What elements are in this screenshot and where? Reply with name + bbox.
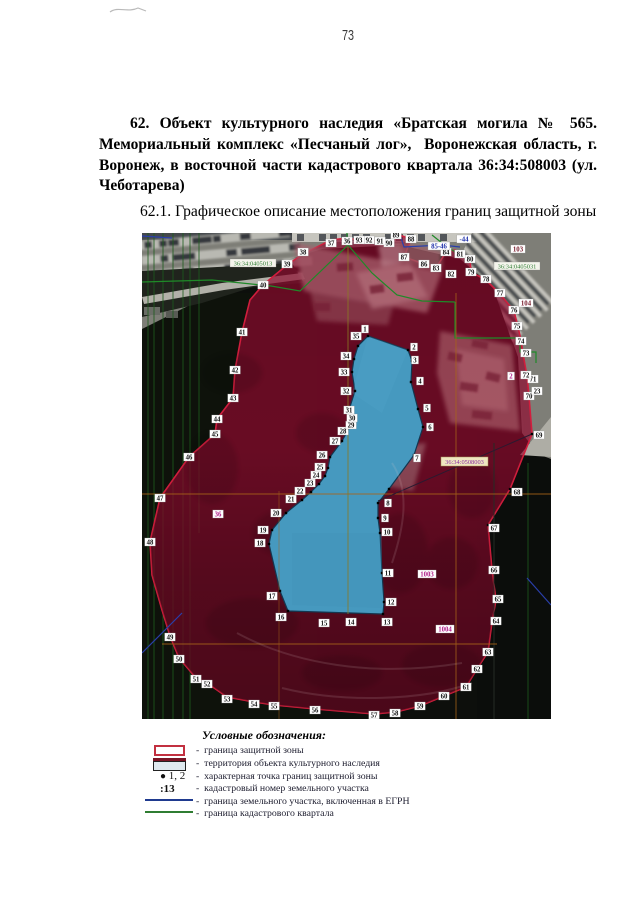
svg-text:74: 74 (518, 338, 525, 345)
svg-text:61: 61 (463, 684, 470, 691)
svg-text:32: 32 (343, 388, 350, 395)
svg-text:77: 77 (497, 290, 504, 297)
svg-text:1: 1 (363, 326, 367, 333)
svg-text:-44: -44 (459, 236, 469, 243)
svg-text:40: 40 (260, 282, 267, 289)
svg-text:36: 36 (215, 511, 222, 518)
svg-text:44: 44 (214, 416, 221, 423)
svg-text:33: 33 (341, 369, 348, 376)
svg-text:90: 90 (386, 240, 393, 247)
svg-text:9: 9 (383, 515, 387, 522)
svg-text:27: 27 (332, 438, 339, 445)
svg-text:45: 45 (212, 431, 219, 438)
svg-text:1004: 1004 (438, 626, 452, 633)
svg-text:7: 7 (415, 455, 419, 462)
svg-text:50: 50 (176, 656, 183, 663)
svg-text:81: 81 (457, 251, 464, 258)
svg-text:91: 91 (377, 238, 384, 245)
svg-text:57: 57 (371, 712, 378, 719)
svg-text:54: 54 (251, 701, 258, 708)
svg-text:49: 49 (167, 634, 174, 641)
svg-text:19: 19 (260, 527, 267, 534)
svg-text:84: 84 (443, 249, 450, 256)
svg-text:8: 8 (386, 500, 390, 507)
svg-text:24: 24 (313, 472, 320, 479)
svg-text:103: 103 (513, 246, 524, 253)
svg-text:52: 52 (204, 681, 211, 688)
svg-text:59: 59 (417, 703, 424, 710)
svg-text:28: 28 (340, 428, 347, 435)
svg-text:88: 88 (408, 236, 415, 243)
svg-text:79: 79 (468, 269, 475, 276)
svg-text:29: 29 (348, 422, 355, 429)
svg-text:43: 43 (230, 395, 237, 402)
svg-text:73: 73 (523, 350, 530, 357)
svg-text:10: 10 (384, 529, 391, 536)
svg-text:76: 76 (511, 307, 518, 314)
svg-text:69: 69 (536, 432, 543, 439)
svg-text:82: 82 (448, 271, 455, 278)
svg-text:35: 35 (353, 333, 360, 340)
svg-text:46: 46 (186, 454, 193, 461)
svg-text:72: 72 (523, 372, 530, 379)
svg-text:3: 3 (413, 357, 417, 364)
svg-text:85-46: 85-46 (431, 243, 447, 250)
svg-text:36: 36 (344, 238, 351, 245)
svg-text:87: 87 (401, 254, 408, 261)
svg-text:23: 23 (534, 388, 541, 395)
svg-text:31: 31 (346, 407, 353, 414)
svg-text:37: 37 (328, 240, 335, 247)
svg-text:36:34:0405013: 36:34:0405013 (234, 260, 273, 267)
svg-text:86: 86 (421, 261, 428, 268)
svg-text:22: 22 (297, 488, 304, 495)
svg-text:75: 75 (514, 323, 521, 330)
svg-text:53: 53 (224, 696, 231, 703)
svg-text:2: 2 (509, 373, 513, 380)
svg-text:15: 15 (321, 620, 328, 627)
svg-text:25: 25 (317, 464, 324, 471)
svg-text:34: 34 (343, 353, 350, 360)
svg-text:83: 83 (433, 265, 440, 272)
svg-text:2: 2 (412, 344, 416, 351)
svg-text:39: 39 (284, 261, 291, 268)
svg-text:5: 5 (425, 405, 429, 412)
svg-text:66: 66 (491, 567, 498, 574)
svg-text:36:34:0508003: 36:34:0508003 (445, 459, 484, 466)
svg-text:21: 21 (288, 496, 295, 503)
svg-text:80: 80 (467, 256, 474, 263)
svg-text:20: 20 (273, 510, 280, 517)
svg-text:6: 6 (428, 424, 432, 431)
svg-text:93: 93 (356, 237, 363, 244)
svg-text:13: 13 (384, 619, 391, 626)
svg-text:63: 63 (485, 649, 492, 656)
svg-text:51: 51 (193, 676, 200, 683)
svg-text:56: 56 (312, 707, 319, 714)
svg-text:41: 41 (239, 329, 246, 336)
svg-text:55: 55 (271, 703, 278, 710)
svg-text:65: 65 (495, 596, 502, 603)
svg-text:30: 30 (349, 415, 356, 422)
svg-text:17: 17 (269, 593, 276, 600)
svg-text:47: 47 (157, 495, 164, 502)
svg-text:67: 67 (491, 525, 498, 532)
svg-text:48: 48 (147, 539, 154, 546)
svg-text:92: 92 (366, 237, 373, 244)
svg-text:4: 4 (418, 378, 422, 385)
svg-text:11: 11 (385, 570, 392, 577)
svg-text:58: 58 (392, 710, 399, 717)
svg-text:26: 26 (319, 452, 326, 459)
svg-text:68: 68 (514, 489, 521, 496)
svg-text:16: 16 (278, 614, 285, 621)
svg-text:60: 60 (441, 693, 448, 700)
svg-text:18: 18 (257, 540, 264, 547)
svg-text:78: 78 (483, 276, 490, 283)
svg-text:38: 38 (300, 249, 307, 256)
svg-text:23: 23 (307, 480, 314, 487)
svg-text:42: 42 (232, 367, 239, 374)
svg-text:14: 14 (348, 619, 355, 626)
svg-text:1003: 1003 (420, 571, 434, 578)
svg-text:36:34:0405031: 36:34:0405031 (498, 263, 537, 270)
svg-text:64: 64 (493, 618, 500, 625)
svg-text:12: 12 (388, 599, 395, 606)
svg-text:62: 62 (474, 666, 481, 673)
svg-text:104: 104 (521, 300, 532, 307)
svg-text:89: 89 (393, 233, 400, 239)
